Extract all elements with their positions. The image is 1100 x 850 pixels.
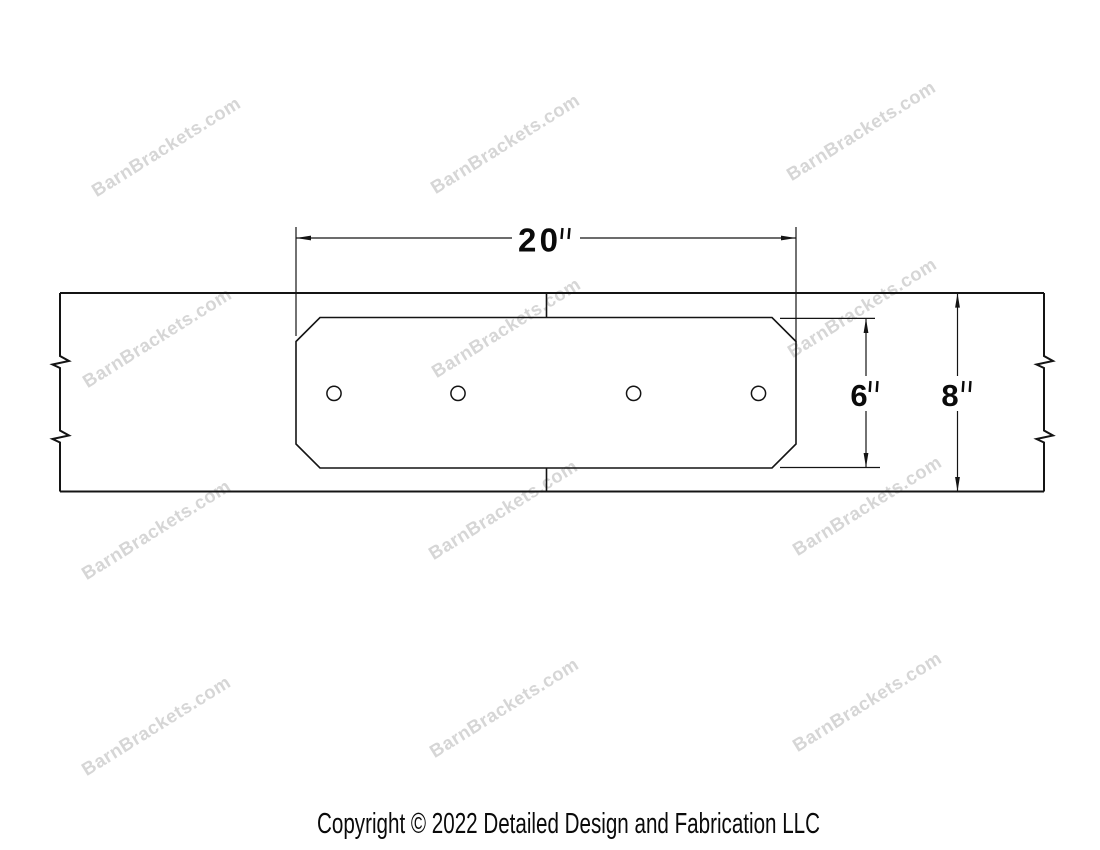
svg-text:BarnBrackets.com: BarnBrackets.com [425,455,581,563]
svg-text:BarnBrackets.com: BarnBrackets.com [427,89,583,197]
svg-text:BarnBrackets.com: BarnBrackets.com [79,283,235,391]
svg-text:BarnBrackets.com: BarnBrackets.com [428,273,584,381]
svg-text:Copyright © 2022 Detailed Desi: Copyright © 2022 Detailed Design and Fab… [317,808,820,840]
svg-text:BarnBrackets.com: BarnBrackets.com [784,253,940,361]
svg-text:BarnBrackets.com: BarnBrackets.com [426,653,582,761]
svg-text:20: 20 [518,222,558,259]
svg-text:BarnBrackets.com: BarnBrackets.com [78,671,234,779]
svg-text:BarnBrackets.com: BarnBrackets.com [789,647,945,755]
svg-text:BarnBrackets.com: BarnBrackets.com [783,76,939,184]
svg-text:6: 6 [850,378,867,413]
svg-text:8: 8 [941,378,958,413]
svg-text:BarnBrackets.com: BarnBrackets.com [88,92,244,200]
